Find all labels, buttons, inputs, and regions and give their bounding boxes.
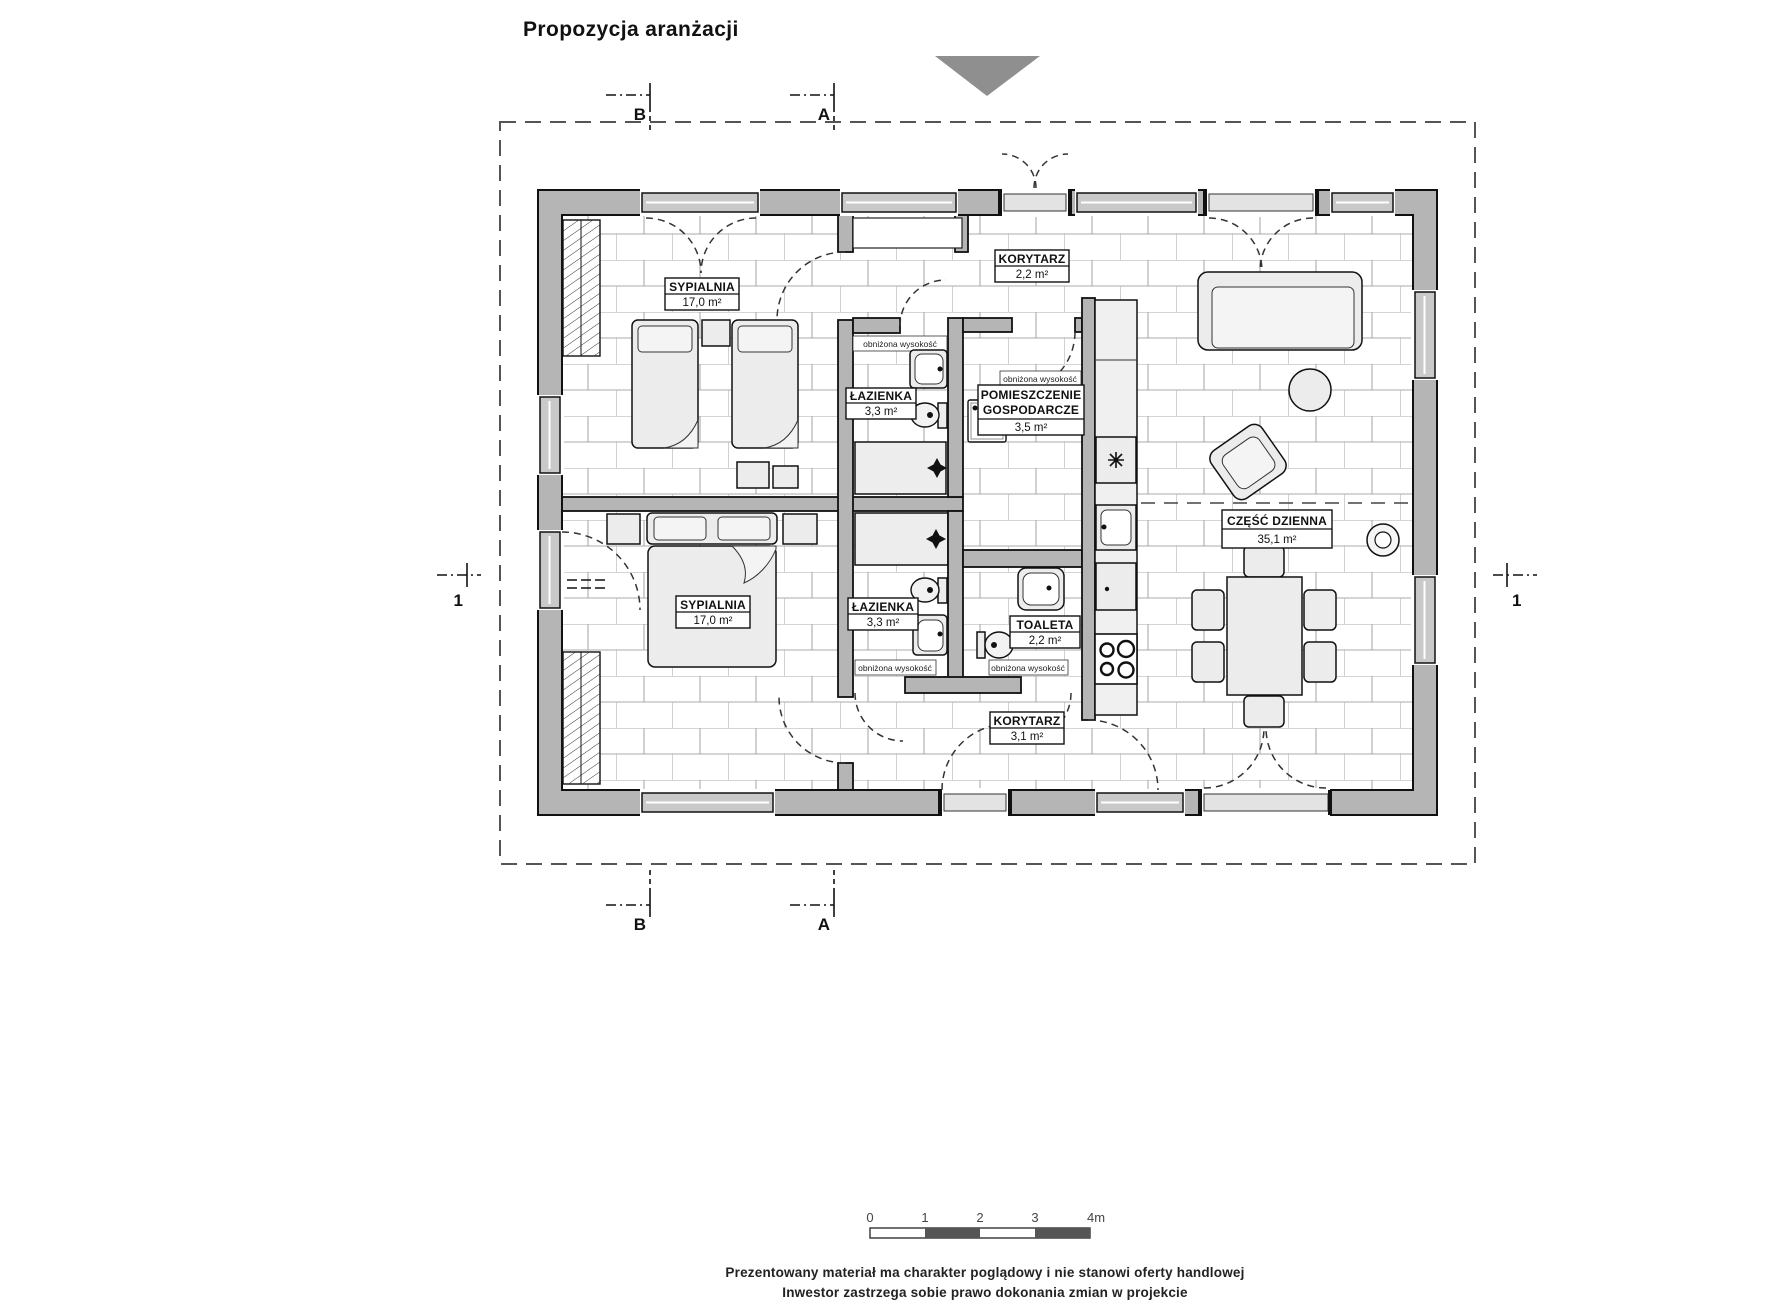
wardrobe-top [563, 220, 600, 356]
lowered-height-note-3: obniżona wysokość [855, 660, 936, 675]
svg-text:obniżona wysokość: obniżona wysokość [1003, 374, 1077, 384]
interior-wall-living-partition [1082, 298, 1095, 720]
dining-table [1227, 577, 1302, 695]
cooktop [1095, 634, 1137, 684]
section-letter: B [634, 915, 646, 934]
interior-wall-utility-top-b [1075, 318, 1082, 332]
kitchen-sink [1096, 505, 1136, 550]
svg-text:2,2 m²: 2,2 m² [1016, 269, 1049, 281]
sofa [1198, 272, 1362, 350]
sink-bathroom-top [910, 350, 947, 388]
nightstand-left [607, 514, 640, 544]
wardrobe-bottom [563, 652, 600, 784]
svg-text:obniżona wysokość: obniżona wysokość [858, 663, 932, 673]
kitchen-cabinet [1096, 563, 1136, 610]
side-table [1367, 524, 1399, 556]
foot-table-1 [737, 462, 769, 488]
interior-wall-bathroom2-right [948, 511, 963, 690]
lowered-height-note-4: obniżona wysokość [989, 660, 1068, 675]
window-left-1 [536, 395, 564, 475]
lowered-height-note-1: obniżona wysokość [853, 336, 947, 351]
room-label-bathroom-bottom: ŁAZIENKA 3,3 m² [848, 598, 918, 630]
window-bottom-2 [1095, 789, 1185, 816]
kitchen-counter [1095, 300, 1137, 715]
dining-chair [1304, 642, 1336, 682]
fridge-icon [1096, 437, 1136, 483]
room-label-living: CZĘŚĆ DZIENNA 35,1 m² [1222, 510, 1332, 548]
scale-tick-4: 4m [1087, 1210, 1105, 1225]
scale-tick-2: 2 [976, 1210, 983, 1225]
svg-text:SYPIALNIA: SYPIALNIA [669, 280, 735, 294]
svg-text:obniżona wysokość: obniżona wysokość [991, 663, 1065, 673]
svg-text:ŁAZIENKA: ŁAZIENKA [850, 389, 912, 403]
section-letter: A [818, 105, 830, 124]
room-label-bedroom-bottom: SYPIALNIA 17,0 m² [676, 596, 750, 628]
svg-text:3,3 m²: 3,3 m² [867, 617, 900, 629]
svg-text:TOALETA: TOALETA [1017, 618, 1074, 632]
dining-chair [1192, 590, 1224, 630]
svg-text:17,0 m²: 17,0 m² [694, 615, 733, 627]
window-bottom-1 [640, 789, 775, 816]
page-title: Propozycja aranżacji [523, 18, 739, 41]
dining-chair [1244, 696, 1284, 727]
entrance-marker-icon [935, 56, 1040, 96]
section-letter: 1 [1512, 591, 1521, 610]
section-marker-b-top: B [606, 83, 650, 134]
svg-text:3,1 m²: 3,1 m² [1011, 731, 1044, 743]
window-right-2 [1411, 575, 1439, 665]
window-left-2 [536, 530, 564, 610]
scale-bar: 0 1 2 3 4m [866, 1210, 1105, 1238]
svg-text:17,0 m²: 17,0 m² [683, 297, 722, 309]
window-top-2 [840, 189, 958, 216]
svg-text:GOSPODARCZE: GOSPODARCZE [983, 403, 1079, 417]
dining-chair [1244, 546, 1284, 577]
svg-text:2,2 m²: 2,2 m² [1029, 635, 1062, 647]
window-right-1 [1411, 290, 1439, 380]
svg-text:3,5 m²: 3,5 m² [1015, 422, 1048, 434]
room-label-bedroom-top: SYPIALNIA 17,0 m² [665, 278, 739, 310]
disclaimer-line-1: Prezentowany materiał ma charakter poglą… [725, 1265, 1244, 1280]
scale-tick-1: 1 [921, 1210, 928, 1225]
nightstand-between-beds [702, 320, 730, 346]
section-marker-a-bottom: A [790, 870, 834, 934]
svg-text:CZĘŚĆ DZIENNA: CZĘŚĆ DZIENNA [1227, 513, 1327, 528]
svg-text:SYPIALNIA: SYPIALNIA [680, 598, 746, 612]
svg-text:obniżona wysokość: obniżona wysokość [863, 339, 937, 349]
dining-chair [1192, 642, 1224, 682]
svg-text:KORYTARZ: KORYTARZ [999, 252, 1066, 266]
interior-wall-toilet-top [963, 550, 1082, 567]
room-label-bathroom-top: ŁAZIENKA 3,3 m² [846, 388, 916, 419]
nightstand-right [783, 514, 817, 544]
interior-wall-utility-top-a [963, 318, 1012, 332]
bed-single-2 [732, 320, 798, 448]
disclaimer-line-2: Inwestor zastrzega sobie prawo dokonania… [782, 1285, 1188, 1300]
dining-chair [1304, 590, 1336, 630]
shower-bottom [855, 513, 948, 565]
window-top-1 [640, 189, 760, 216]
floor-plan-svg: Propozycja aranżacji B A B A 1 [0, 0, 1774, 1306]
toilet-toilet-room [977, 632, 1013, 658]
coffee-table [1289, 369, 1331, 411]
interior-wall-bedroom-right-a [838, 215, 853, 252]
window-top-4 [1330, 189, 1395, 216]
svg-text:ŁAZIENKA: ŁAZIENKA [852, 600, 914, 614]
interior-wall-bedroom-right-b [838, 320, 853, 697]
room-label-utility: POMIESZCZENIE GOSPODARCZE 3,5 m² [978, 385, 1084, 435]
svg-text:POMIESZCZENIE: POMIESZCZENIE [981, 388, 1082, 402]
section-marker-1-right: 1 [1493, 563, 1537, 610]
lowered-height-note-2: obniżona wysokość [1000, 371, 1081, 386]
section-marker-a-top: A [790, 83, 834, 134]
room-label-corridor-bottom: KORYTARZ 3,1 m² [990, 712, 1064, 744]
room-label-toilet: TOALETA 2,2 m² [1010, 616, 1080, 648]
section-marker-1-left: 1 [437, 563, 481, 610]
foot-table-2 [773, 466, 798, 488]
interior-wall-bedroom-right-c [838, 763, 853, 790]
shower-top [855, 442, 947, 494]
interior-wall-bathroom-top [853, 318, 900, 333]
entrance-door [998, 154, 1072, 217]
bed-single-1 [632, 320, 698, 448]
svg-text:KORYTARZ: KORYTARZ [994, 714, 1061, 728]
room-label-corridor-top: KORYTARZ 2,2 m² [995, 250, 1069, 282]
window-top-3 [1075, 189, 1198, 216]
svg-text:35,1 m²: 35,1 m² [1258, 534, 1297, 546]
sink-toilet-room [1018, 568, 1064, 610]
floor-plan-page: Propozycja aranżacji B A B A 1 [0, 0, 1774, 1306]
svg-text:3,3 m²: 3,3 m² [865, 406, 898, 418]
section-letter: A [818, 915, 830, 934]
section-marker-b-bottom: B [606, 870, 650, 934]
interior-wall-bedroom-divider [562, 497, 963, 511]
scale-tick-3: 3 [1031, 1210, 1038, 1225]
section-letter: 1 [454, 591, 463, 610]
bed-double [647, 513, 777, 667]
scale-tick-0: 0 [866, 1210, 873, 1225]
section-letter: B [634, 105, 646, 124]
interior-wall-bathroom-right [948, 318, 963, 497]
bulkhead-passage [853, 218, 962, 248]
interior-wall-bath-toilet-bottom [905, 677, 1021, 693]
